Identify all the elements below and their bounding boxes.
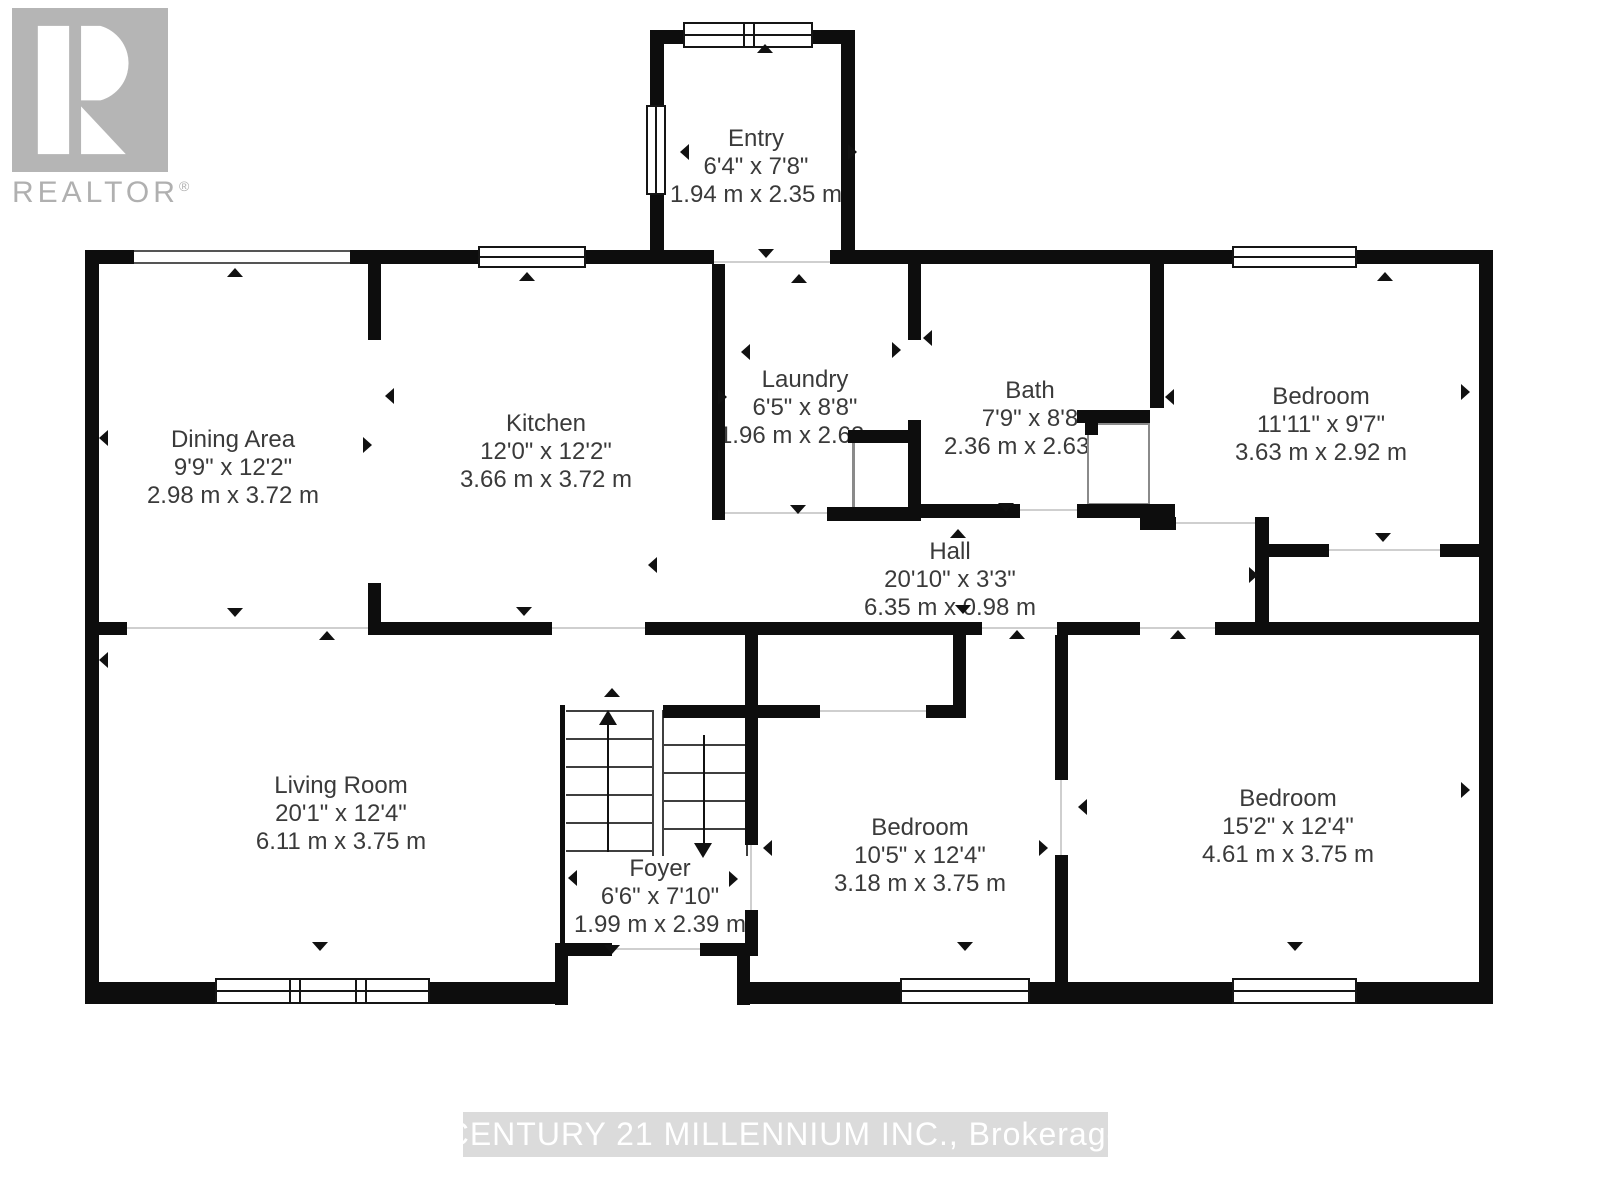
- wall-bedroom-tr-bottom: [1269, 544, 1329, 557]
- room-label-dining: Dining Area 9'9" x 12'2" 2.98 m x 3.72 m: [147, 426, 319, 510]
- wall-porch-right: [737, 943, 750, 1005]
- door-arrow-left: [1078, 799, 1087, 815]
- door-arrow-left: [648, 557, 657, 573]
- door-arrow-up: [519, 272, 535, 281]
- opening-guide: [982, 627, 1057, 629]
- door-arrow-left: [763, 840, 772, 856]
- door-arrow-left: [741, 344, 750, 360]
- realtor-r-glyph: [12, 8, 168, 172]
- stairs-down-arrow: [703, 735, 705, 843]
- wall-bath-closet: [1077, 410, 1150, 423]
- room-dim-imperial: 20'1" x 12'4": [256, 800, 426, 828]
- door-arrow-right: [729, 871, 738, 887]
- opening-guide: [820, 710, 926, 712]
- room-dim-metric: 1.94 m x 2.35 m: [670, 181, 842, 209]
- room-label-hall: Hall 20'10" x 3'3" 6.35 m x 0.98 m: [864, 538, 1036, 622]
- wall-mid: [368, 622, 552, 635]
- door-arrow-up: [1009, 630, 1025, 639]
- door-arrow-up: [319, 631, 335, 640]
- stairs-up-arrow-head: [599, 710, 617, 725]
- door-arrow-down: [957, 942, 973, 951]
- wall-mid: [85, 622, 127, 635]
- wall-outer-top: [350, 250, 478, 264]
- door-arrow-down: [227, 608, 243, 617]
- stairs-up-arrow: [607, 724, 609, 852]
- room-dim-imperial: 6'6" x 7'10": [574, 883, 746, 911]
- wall-hall-top: [1077, 504, 1175, 518]
- window: [215, 978, 430, 1004]
- door-arrow-right: [1461, 384, 1470, 400]
- wall-porch-left: [555, 943, 568, 1005]
- room-label-bedroom-bottom-right: Bedroom 15'2" x 12'4" 4.61 m x 3.75 m: [1202, 785, 1374, 869]
- bath-closet-outline: [1087, 423, 1150, 505]
- room-label-bedroom-middle: Bedroom 10'5" x 12'4" 3.18 m x 3.75 m: [834, 814, 1006, 898]
- opening-guide: [1175, 522, 1255, 524]
- brokerage-watermark: CENTURY 21 MILLENNIUM INC., Brokerage: [463, 1112, 1108, 1157]
- door-arrow-down: [998, 503, 1014, 512]
- room-dim-metric: 3.63 m x 2.92 m: [1235, 439, 1407, 467]
- room-label-bedroom-top-right: Bedroom 11'11" x 9'7" 3.63 m x 2.92 m: [1235, 383, 1407, 467]
- opening-guide: [612, 948, 700, 950]
- staircase-right-flight: [662, 718, 748, 856]
- door-arrow-left: [99, 652, 108, 668]
- wall-laundry-closet: [848, 430, 920, 443]
- window: [478, 246, 586, 268]
- room-dim-metric: 6.11 m x 3.75 m: [256, 828, 426, 856]
- room-name: Laundry: [719, 366, 891, 394]
- door-arrow-up: [604, 688, 620, 697]
- wall-mid: [1057, 622, 1140, 635]
- room-name: Bedroom: [834, 814, 1006, 842]
- door-arrow-left: [568, 870, 577, 886]
- door-arrow-right: [1039, 840, 1048, 856]
- door-arrow-left: [680, 144, 689, 160]
- opening-guide: [714, 261, 830, 263]
- window: [683, 22, 813, 48]
- door-arrow-down: [1375, 533, 1391, 542]
- wall-outer-bottom: [750, 982, 1493, 1004]
- wall-hall-top: [1140, 517, 1176, 530]
- wall-outer-top: [85, 250, 134, 264]
- window: [900, 978, 1030, 1004]
- room-label-entry: Entry 6'4" x 7'8" 1.94 m x 2.35 m: [670, 125, 842, 209]
- door-arrow-down: [604, 945, 620, 954]
- door-arrow-right: [848, 144, 857, 160]
- wall-bath-bedroom: [1150, 264, 1164, 408]
- room-name: Kitchen: [460, 410, 632, 438]
- door-arrow-up: [1170, 630, 1186, 639]
- room-name: Foyer: [574, 855, 746, 883]
- door-arrow-right: [718, 389, 727, 405]
- opening-guide: [1140, 627, 1215, 629]
- opening-guide: [127, 627, 368, 629]
- room-name: Hall: [864, 538, 1036, 566]
- room-name: Bedroom: [1235, 383, 1407, 411]
- wall-closet-bottom: [663, 705, 820, 718]
- opening-guide: [1329, 549, 1440, 551]
- door-arrow-up: [791, 274, 807, 283]
- opening-guide: [1020, 509, 1077, 511]
- registered-symbol: ®: [179, 178, 193, 194]
- door-arrow-right: [1249, 567, 1258, 583]
- window: [134, 250, 350, 264]
- wall-dining-kitchen: [368, 264, 381, 340]
- room-dim-imperial: 10'5" x 12'4": [834, 842, 1006, 870]
- room-dim-metric: 3.18 m x 3.75 m: [834, 870, 1006, 898]
- room-dim-imperial: 12'0" x 12'2": [460, 438, 632, 466]
- room-dim-imperial: 6'5" x 8'8": [719, 394, 891, 422]
- wall-hall-top: [827, 507, 921, 521]
- wall-bedroom-divider: [1055, 635, 1068, 780]
- wall-outer-top: [830, 250, 1493, 264]
- wall-bedroom-tr-bottom: [1440, 544, 1493, 557]
- door-arrow-left: [385, 388, 394, 404]
- door-arrow-down: [955, 605, 971, 614]
- door-arrow-down: [1287, 942, 1303, 951]
- stairs-down-arrow-head: [694, 843, 712, 858]
- room-name: Living Room: [256, 772, 426, 800]
- window: [1232, 246, 1357, 268]
- door-arrow-left: [923, 330, 932, 346]
- room-dim-imperial: 9'9" x 12'2": [147, 454, 319, 482]
- wall-bath-closet-stub: [1085, 423, 1098, 435]
- room-name: Entry: [670, 125, 842, 153]
- door-arrow-down: [516, 607, 532, 616]
- room-label-kitchen: Kitchen 12'0" x 12'2" 3.66 m x 3.72 m: [460, 410, 632, 494]
- door-arrow-up: [757, 44, 773, 53]
- wall-bedroom-divider: [1055, 855, 1068, 997]
- door-arrow-up: [950, 529, 966, 538]
- room-dim-imperial: 11'11" x 9'7": [1235, 411, 1407, 439]
- opening-guide: [552, 627, 645, 629]
- door-arrow-left: [99, 430, 108, 446]
- room-dim-metric: 2.98 m x 3.72 m: [147, 482, 319, 510]
- room-label-foyer: Foyer 6'6" x 7'10" 1.99 m x 2.39 m: [566, 853, 754, 941]
- room-dim-metric: 4.61 m x 3.75 m: [1202, 841, 1374, 869]
- realtor-logo-text: REALTOR®: [12, 176, 193, 210]
- door-arrow-left: [1165, 389, 1174, 405]
- door-arrow-down: [312, 942, 328, 951]
- room-name: Bedroom: [1202, 785, 1374, 813]
- door-arrow-up: [227, 268, 243, 277]
- room-name: Bath: [944, 377, 1116, 405]
- opening-guide: [725, 512, 827, 514]
- door-arrow-up: [1377, 272, 1393, 281]
- room-dim-imperial: 20'10" x 3'3": [864, 566, 1036, 594]
- door-arrow-right: [1461, 782, 1470, 798]
- wall-closet-right: [953, 635, 966, 718]
- floor-plan-canvas: Entry 6'4" x 7'8" 1.94 m x 2.35 m Dining…: [0, 0, 1600, 1200]
- room-dim-imperial: 15'2" x 12'4": [1202, 813, 1374, 841]
- wall-mid: [1215, 622, 1493, 635]
- room-label-living: Living Room 20'1" x 12'4" 6.11 m x 3.75 …: [256, 772, 426, 856]
- door-arrow-right: [892, 342, 901, 358]
- door-arrow-right: [363, 437, 372, 453]
- wall-laundry-bath: [908, 264, 921, 340]
- door-arrow-down: [758, 249, 774, 258]
- closet-partition-line: [852, 443, 855, 507]
- room-dim-metric: 1.99 m x 2.39 m: [574, 911, 746, 939]
- wall-foyer-right: [745, 635, 758, 845]
- opening-guide: [1060, 780, 1062, 855]
- realtor-logo-icon: [12, 8, 168, 172]
- room-dim-imperial: 6'4" x 7'8": [670, 153, 842, 181]
- realtor-wordmark: REALTOR: [12, 176, 179, 209]
- room-dim-metric: 6.35 m x 0.98 m: [864, 594, 1036, 622]
- room-name: Dining Area: [147, 426, 319, 454]
- opening-guide: [750, 845, 752, 910]
- staircase-left-flight: [566, 710, 652, 858]
- window: [646, 105, 666, 195]
- room-dim-metric: 3.66 m x 3.72 m: [460, 466, 632, 494]
- wall-mid: [645, 622, 982, 635]
- window: [1232, 978, 1357, 1004]
- wall-stair-left: [560, 705, 565, 945]
- door-arrow-down: [790, 505, 806, 514]
